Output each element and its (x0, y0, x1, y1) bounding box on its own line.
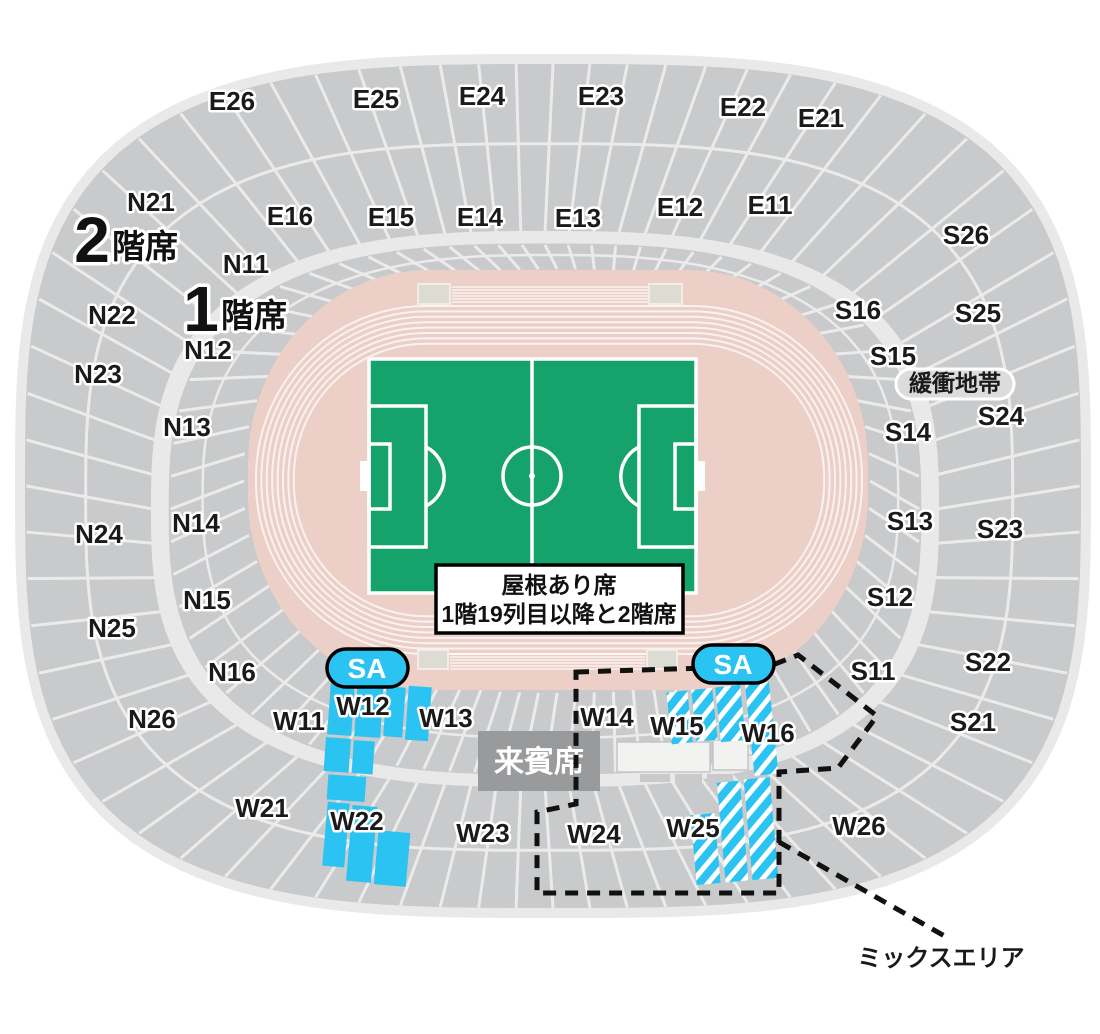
section-label-w11: W11 (273, 706, 325, 736)
highlight-block (327, 774, 367, 802)
buffer-zone-label: 緩衝地帯 (909, 370, 1001, 396)
section-label-w15: W15 (650, 711, 703, 741)
stadium-map-svg: 来賓席 SA SA 緩衝地帯 屋根あり席 1階19列目以降と2階席 2 階席 1… (0, 0, 1100, 1034)
section-label-w23: W23 (456, 818, 509, 848)
section-label-s14: S14 (885, 417, 932, 447)
section-label-n21: N21 (127, 187, 175, 217)
section-label-n24: N24 (75, 519, 123, 549)
section-label-s25: S25 (955, 298, 1001, 328)
sa-badge-left: SA (327, 649, 408, 687)
section-label-s26: S26 (943, 220, 989, 250)
section-label-s22: S22 (965, 647, 1011, 677)
section-label-w22: W22 (330, 806, 383, 836)
section-label-n12: N12 (184, 335, 232, 365)
section-label-e21: E21 (798, 103, 844, 133)
section-label-s13: S13 (887, 506, 933, 536)
mix-area-label: ミックスエリア (857, 945, 1024, 972)
section-label-n26: N26 (128, 704, 176, 734)
section-label-n16: N16 (208, 657, 256, 687)
pitch-center-spot (529, 473, 535, 479)
sa-badge-label: SA (714, 649, 753, 680)
roof-note-line1: 屋根あり席 (502, 572, 617, 598)
section-label-s24: S24 (978, 401, 1025, 431)
track-equipment-box (647, 650, 677, 669)
tribune-tab (707, 774, 733, 782)
section-label-w13: W13 (419, 703, 472, 733)
track-equipment-box (649, 284, 682, 304)
section-label-w12: W12 (336, 691, 389, 721)
section-label-e22: E22 (720, 92, 766, 122)
section-label-w26: W26 (832, 811, 885, 841)
ring-decoration (613, 246, 615, 271)
ring-decoration (28, 578, 156, 579)
tribune-box (617, 742, 710, 772)
section-label-e23: E23 (578, 81, 624, 111)
section-label-e16: E16 (267, 201, 313, 231)
floor2-suffix: 階席 (112, 228, 178, 265)
section-label-n22: N22 (88, 300, 136, 330)
section-label-e26: E26 (209, 86, 255, 116)
section-label-e24: E24 (459, 81, 506, 111)
section-label-e13: E13 (555, 203, 601, 233)
section-label-w16: W16 (741, 718, 794, 748)
tribune-tab (640, 774, 670, 782)
section-label-w25: W25 (666, 813, 719, 843)
highlight-block (352, 740, 375, 774)
floor2-number: 2 (74, 204, 110, 276)
highlight-block (374, 830, 411, 887)
floor1-suffix: 階席 (221, 297, 287, 334)
track-equipment-box (418, 650, 448, 669)
section-label-n25: N25 (88, 613, 136, 643)
section-label-e14: E14 (457, 202, 504, 232)
section-label-n11: N11 (223, 249, 269, 279)
vip-seats-box: 来賓席 (478, 731, 600, 791)
section-label-e12: E12 (657, 192, 703, 222)
soccer-pitch (360, 359, 705, 593)
pitch-goal-right (696, 461, 705, 491)
section-label-e15: E15 (368, 202, 414, 232)
section-label-w24: W24 (567, 819, 621, 849)
section-label-n14: N14 (172, 508, 220, 538)
section-label-n23: N23 (74, 359, 122, 389)
sa-badge-right: SA (693, 645, 774, 683)
section-label-e11: E11 (748, 190, 793, 220)
section-label-s15: S15 (870, 341, 916, 371)
section-label-s11: S11 (851, 656, 896, 686)
section-label-w21: W21 (235, 793, 288, 823)
vip-seats-label: 来賓席 (494, 745, 584, 779)
roof-note-box: 屋根あり席 1階19列目以降と2階席 (436, 565, 683, 633)
sa-badge-label: SA (348, 653, 387, 684)
section-label-s12: S12 (867, 582, 913, 612)
section-label-n13: N13 (163, 412, 211, 442)
section-label-s16: S16 (835, 295, 881, 325)
track-equipment-box (418, 284, 450, 304)
section-label-n15: N15 (183, 585, 231, 615)
ring-decoration (934, 578, 1078, 579)
buffer-zone-pill: 緩衝地帯 (896, 369, 1014, 399)
tribune-tab (675, 774, 702, 782)
section-label-s21: S21 (950, 707, 996, 737)
highlight-block (324, 737, 351, 773)
section-label-e25: E25 (353, 84, 399, 114)
stadium-seating-map: 来賓席 SA SA 緩衝地帯 屋根あり席 1階19列目以降と2階席 2 階席 1… (0, 0, 1100, 1034)
section-label-w14: W14 (580, 702, 634, 732)
pitch-goal-left (360, 461, 369, 491)
roof-note-line2: 1階19列目以降と2階席 (441, 601, 676, 627)
section-label-s23: S23 (977, 514, 1023, 544)
